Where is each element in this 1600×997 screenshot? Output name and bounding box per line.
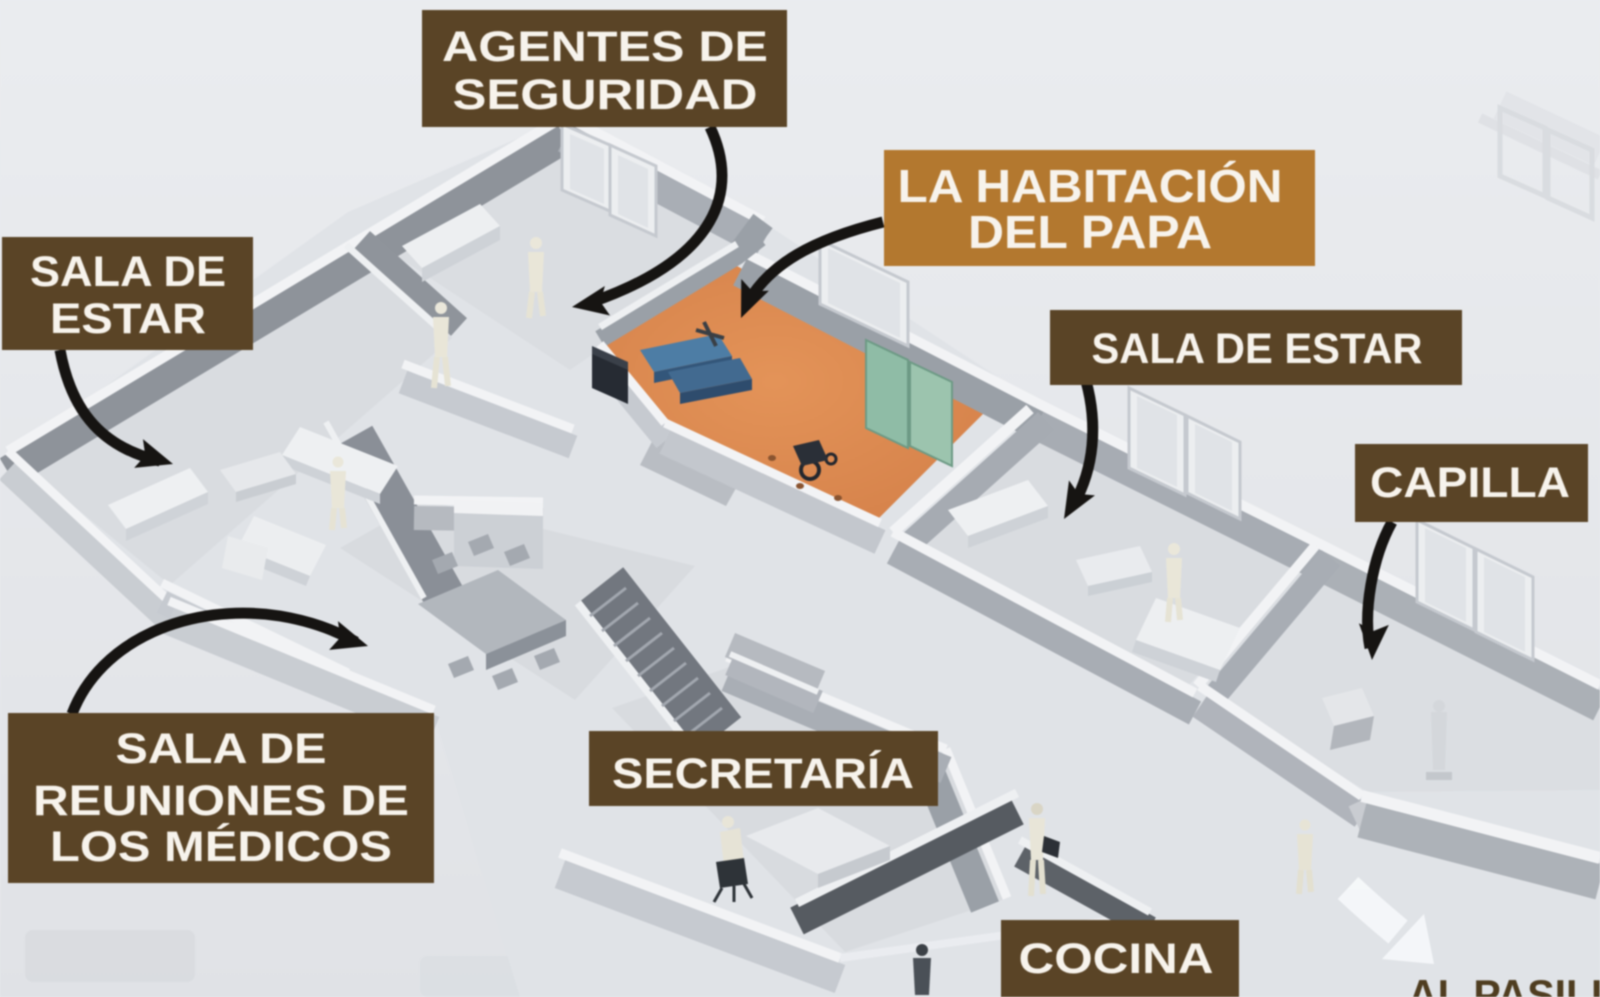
svg-text:SALA DE: SALA DE <box>116 725 327 773</box>
svg-text:SECRETARÍA: SECRETARÍA <box>612 750 914 798</box>
svg-text:SEGURIDAD: SEGURIDAD <box>453 71 758 119</box>
svg-text:ESTAR: ESTAR <box>50 295 206 343</box>
svg-text:SALA DE: SALA DE <box>30 248 226 296</box>
svg-text:LA HABITACIÓN: LA HABITACIÓN <box>898 160 1283 212</box>
svg-text:CAPILLA: CAPILLA <box>1370 459 1570 507</box>
svg-text:DEL PAPA: DEL PAPA <box>968 206 1212 258</box>
svg-text:SALA DE ESTAR: SALA DE ESTAR <box>1092 325 1423 373</box>
svg-text:AGENTES DE: AGENTES DE <box>442 23 768 71</box>
svg-text:COCINA: COCINA <box>1019 935 1214 983</box>
svg-text:LOS MÉDICOS: LOS MÉDICOS <box>50 823 392 871</box>
svg-text:AL PASILLO: AL PASILLO <box>1408 971 1600 997</box>
svg-text:REUNIONES DE: REUNIONES DE <box>33 777 409 825</box>
